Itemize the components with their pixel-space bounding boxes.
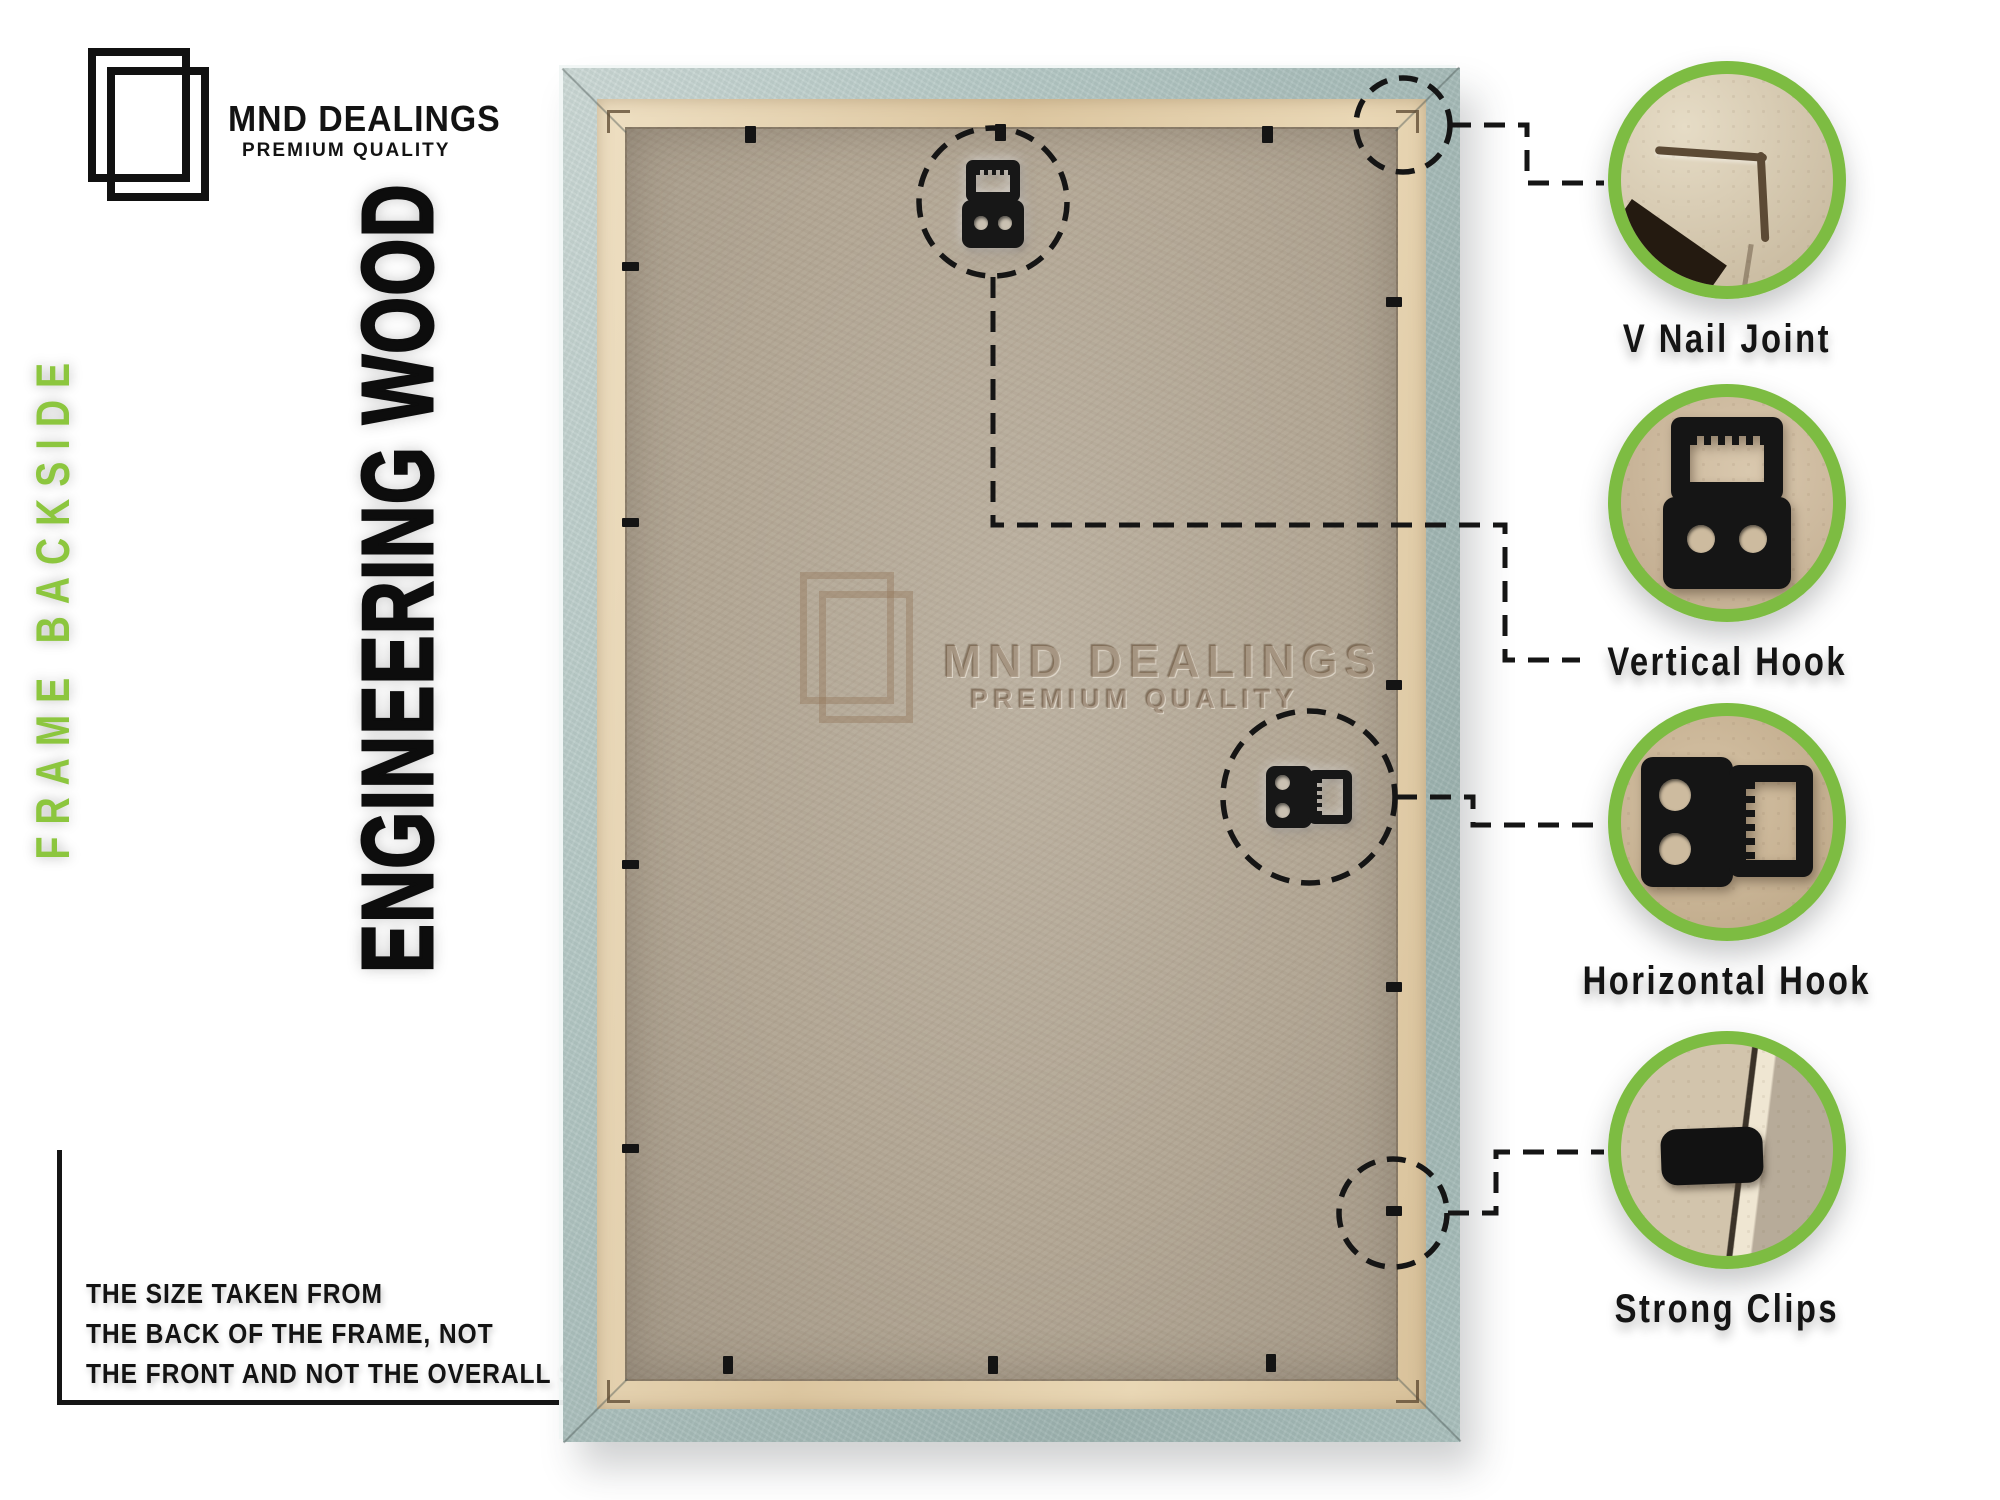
retaining-clip [1266, 1354, 1276, 1372]
screw-hole [1739, 525, 1767, 553]
v-nail-groove [1757, 152, 1770, 242]
retaining-clip [622, 262, 639, 271]
retaining-clip [988, 1356, 998, 1374]
vertical-hook [962, 160, 1024, 248]
size-note: THE SIZE TAKEN FROM THE BACK OF THE FRAM… [57, 1150, 592, 1405]
vertical-hook-icon [1663, 417, 1791, 589]
callout-strong-clips: Strong Clips [1608, 1031, 1846, 1341]
screw-hole [974, 216, 988, 230]
screw-hole [1687, 525, 1715, 553]
screw-hole [998, 216, 1012, 230]
retaining-clip [622, 1144, 639, 1153]
v-nail-mark [1396, 110, 1419, 133]
retaining-clip [1262, 126, 1273, 143]
size-note-line-3: THE FRONT AND NOT THE OVERALL SIZE. [86, 1354, 625, 1394]
horizontal-hook-icon [1641, 757, 1813, 887]
retaining-clip [1386, 1206, 1402, 1216]
callout-label-horizontal-hook: Horizontal Hook [1517, 959, 1937, 1004]
screw-hole [1275, 775, 1290, 790]
v-nail-mark [1396, 1380, 1419, 1403]
side-label-text: FRAME BACKSIDE [25, 351, 80, 860]
connector-line-v-nail-joint [1450, 125, 1604, 183]
horizontal-hook [1266, 766, 1352, 828]
strong-clip-photo [1608, 1031, 1846, 1269]
wood-crack [1741, 244, 1753, 292]
callout-vertical-hook: Vertical Hook [1608, 384, 1846, 694]
callout-v-nail-joint: V Nail Joint [1608, 61, 1846, 371]
callout-label-v-nail-joint: V Nail Joint [1517, 317, 1937, 362]
screw-hole [1659, 779, 1691, 811]
v-nail-mark [607, 1380, 630, 1403]
brand-logo-frame-icon [107, 67, 209, 201]
vertical-hook-loop [966, 160, 1020, 202]
screw-hole [1275, 803, 1290, 818]
material-label-text: ENGINEERING WOOD [341, 183, 456, 973]
vertical-hook-plate [962, 200, 1024, 248]
retaining-clip [1386, 680, 1402, 690]
strong-clip-icon [1660, 1126, 1764, 1186]
v-nail-groove [1655, 146, 1767, 162]
size-note-line-1: THE SIZE TAKEN FROM [86, 1274, 625, 1314]
product-infographic: MND DEALINGS PREMIUM QUALITY FRAME BACKS… [0, 0, 2000, 1500]
retaining-clip [1386, 297, 1402, 307]
v-nail-mark [607, 110, 630, 133]
brand-name: MND DEALINGS [228, 98, 501, 140]
side-label: FRAME BACKSIDE [27, 315, 77, 895]
retaining-clip [622, 518, 639, 527]
callout-label-vertical-hook: Vertical Hook [1517, 640, 1937, 685]
watermark-name: MND DEALINGS [943, 634, 1382, 688]
callout-label-strong-clips: Strong Clips [1517, 1287, 1937, 1332]
retaining-clip [745, 126, 756, 143]
connector-line-strong-clips [1448, 1152, 1604, 1213]
size-note-line-2: THE BACK OF THE FRAME, NOT [86, 1314, 625, 1354]
vertical-hook-photo [1608, 384, 1846, 622]
mdf-backboard [625, 127, 1398, 1381]
wood-shadow [1608, 199, 1727, 299]
retaining-clip [723, 1356, 733, 1374]
horizontal-hook-photo [1608, 703, 1846, 941]
screw-hole [1659, 833, 1691, 865]
horizontal-hook-plate [1266, 766, 1312, 828]
horizontal-hook-loop [1308, 770, 1352, 824]
callout-horizontal-hook: Horizontal Hook [1608, 703, 1846, 1013]
brand-tagline: PREMIUM QUALITY [242, 140, 450, 162]
material-label: ENGINEERING WOOD [340, 196, 456, 960]
retaining-clip [1386, 982, 1402, 992]
retaining-clip [622, 860, 639, 869]
retaining-clip [995, 124, 1006, 141]
watermark-tagline: PREMIUM QUALITY [970, 684, 1299, 715]
watermark-logo-icon [819, 591, 913, 723]
v-nail-joint-photo [1608, 61, 1846, 299]
frame-photo: MND DEALINGS PREMIUM QUALITY [563, 68, 1460, 1442]
